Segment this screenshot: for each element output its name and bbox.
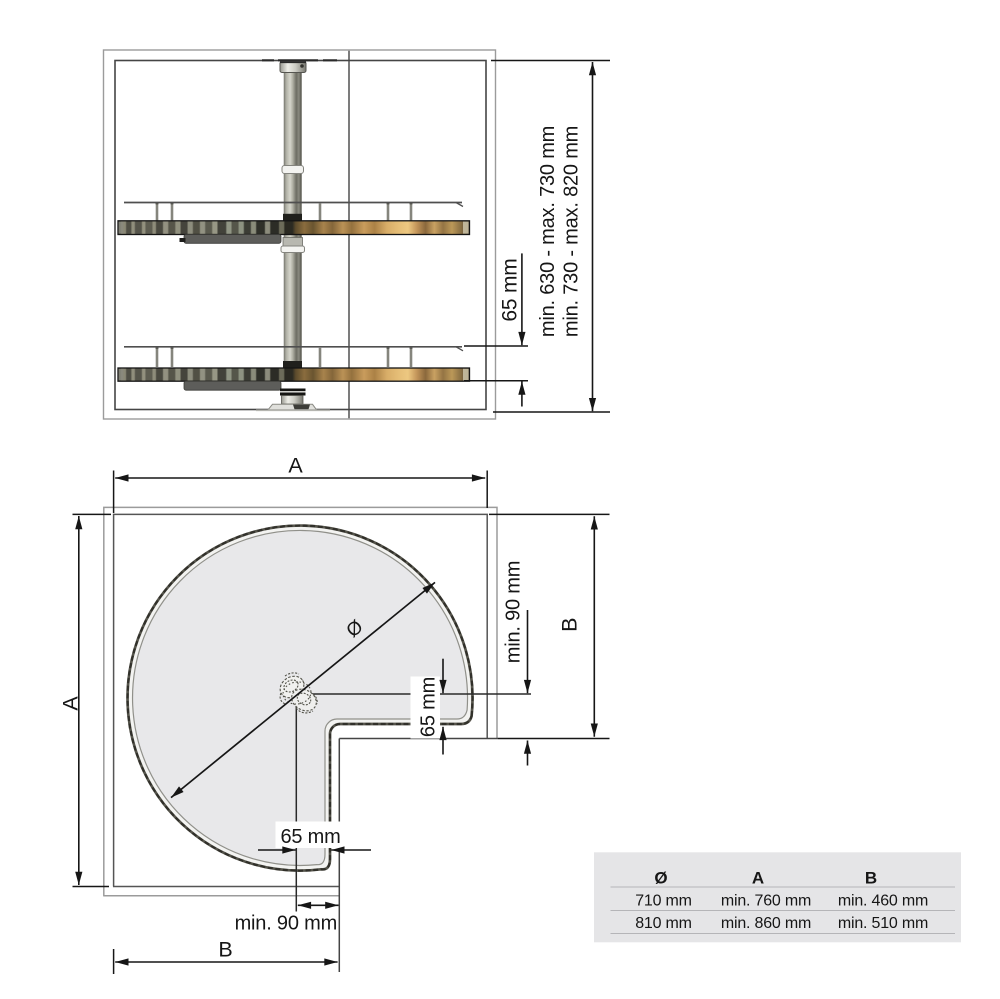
svg-text:Ø: Ø <box>654 869 667 888</box>
svg-text:min. 860 mm: min. 860 mm <box>721 915 811 932</box>
svg-text:min. 90 mm: min. 90 mm <box>503 561 525 663</box>
svg-text:min. 730 - max. 820 mm: min. 730 - max. 820 mm <box>560 126 582 337</box>
svg-text:min. 510 mm: min. 510 mm <box>838 915 928 932</box>
svg-text:min. 90 mm: min. 90 mm <box>235 913 337 935</box>
svg-text:810 mm: 810 mm <box>635 915 692 932</box>
svg-text:A: A <box>752 869 764 888</box>
svg-text:min. 460 mm: min. 460 mm <box>838 893 928 910</box>
svg-text:min. 760 mm: min. 760 mm <box>721 893 811 910</box>
svg-text:B: B <box>865 869 877 888</box>
svg-text:710 mm: 710 mm <box>635 893 692 910</box>
svg-text:65 mm: 65 mm <box>280 826 340 848</box>
svg-text:65 mm: 65 mm <box>418 677 440 737</box>
svg-text:B: B <box>218 938 232 962</box>
svg-text:65 mm: 65 mm <box>499 258 522 321</box>
svg-text:A: A <box>288 454 303 478</box>
svg-text:B: B <box>558 618 582 632</box>
svg-text:A: A <box>59 696 83 711</box>
svg-text:min. 630 - max. 730 mm: min. 630 - max. 730 mm <box>537 126 559 337</box>
